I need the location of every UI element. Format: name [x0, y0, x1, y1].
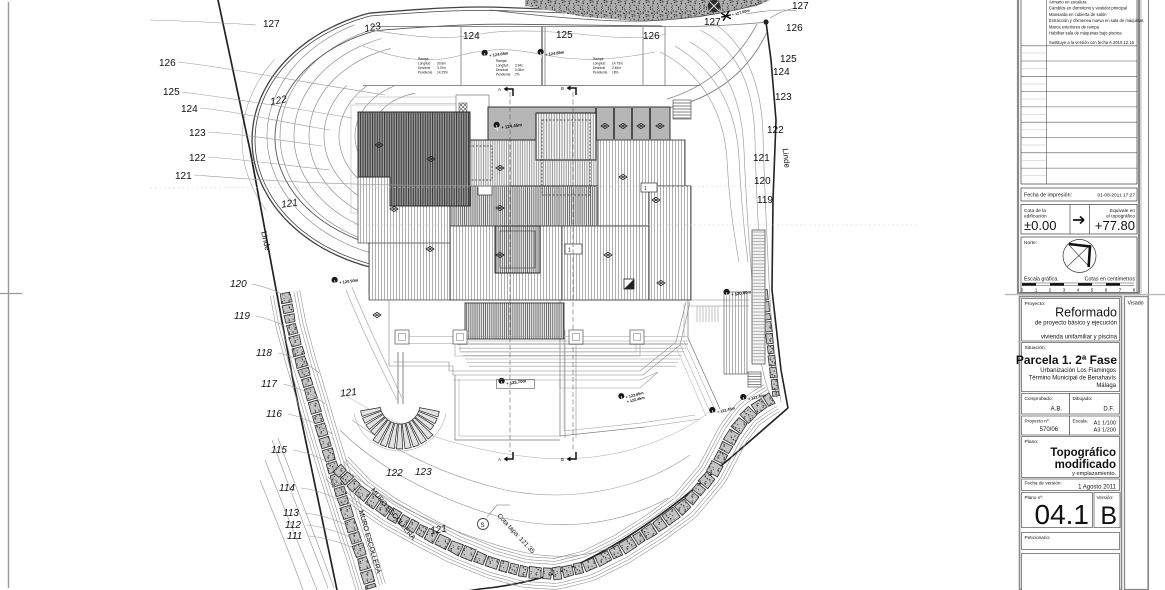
svg-text:Situación:: Situación:: [1025, 345, 1046, 351]
svg-text:±0.00: ±0.00: [1024, 218, 1056, 233]
svg-text:Fecha de impresión:: Fecha de impresión:: [1024, 193, 1072, 199]
svg-text:Cambios en dormitorio y vestid: Cambios en dormitorio y vestidor princip…: [1049, 6, 1127, 11]
svg-text:30.8m: 30.8m: [437, 62, 446, 66]
svg-text:14.75m: 14.75m: [612, 62, 623, 66]
svg-text:2%: 2%: [515, 73, 520, 77]
svg-text:Málaga: Málaga: [1096, 383, 1116, 389]
svg-text:122: 122: [767, 125, 784, 136]
svg-text:121: 121: [281, 198, 299, 211]
svg-text:3: 3: [1063, 288, 1066, 293]
svg-text:B: B: [1100, 502, 1117, 530]
svg-text:127: 127: [792, 1, 809, 12]
svg-text:121: 121: [753, 153, 770, 164]
svg-text:D.F.: D.F.: [1103, 407, 1114, 413]
svg-text:Topográfico: Topográfico: [1050, 447, 1116, 459]
svg-text:Equivale en: Equivale en: [1110, 208, 1135, 214]
svg-text:Marca exteriores de rampa: Marca exteriores de rampa: [1049, 24, 1100, 29]
svg-text:Mansarda en cubierta de salón: Mansarda en cubierta de salón: [1049, 12, 1107, 17]
svg-text:127: 127: [263, 19, 280, 30]
svg-text:Armario en escalera: Armario en escalera: [1049, 0, 1087, 5]
svg-text:Sustituye a la versión con fec: Sustituye a la versión con fecha A.2010.…: [1049, 40, 1135, 45]
svg-text:Desnivel: Desnivel: [418, 66, 431, 70]
svg-text:3.70m: 3.70m: [437, 66, 446, 70]
svg-text:18%: 18%: [612, 71, 619, 75]
svg-text:120: 120: [754, 176, 771, 187]
svg-text:119: 119: [757, 195, 773, 206]
svg-text:Proyecto nº:: Proyecto nº:: [1025, 419, 1050, 424]
svg-text:1 Agosto 2011: 1 Agosto 2011: [1078, 485, 1117, 491]
svg-text:124: 124: [181, 104, 198, 115]
svg-text:A3 1/200: A3 1/200: [1094, 428, 1116, 434]
svg-text:126: 126: [786, 23, 803, 34]
svg-text:8: 8: [1133, 288, 1136, 293]
svg-text:Escala:: Escala:: [1073, 419, 1088, 424]
svg-text:124: 124: [463, 31, 480, 42]
svg-text:122: 122: [386, 468, 403, 479]
svg-text:y emplazamiento.: y emplazamiento.: [1072, 471, 1116, 477]
svg-text:117: 117: [261, 379, 277, 390]
svg-text:A.B.: A.B.: [1051, 407, 1063, 413]
svg-text:Pendiente: Pendiente: [418, 71, 433, 75]
svg-text:Parcela 1. 2ª Fase: Parcela 1. 2ª Fase: [1016, 353, 1118, 367]
svg-text:119: 119: [234, 311, 250, 322]
svg-text:Comprobado:: Comprobado:: [1025, 396, 1053, 401]
svg-text:0.08m: 0.08m: [515, 68, 524, 72]
svg-text:2.46m: 2.46m: [612, 66, 621, 70]
svg-text:14.25%: 14.25%: [437, 71, 448, 75]
svg-text:122: 122: [189, 153, 206, 164]
svg-text:1: 1: [644, 186, 647, 192]
svg-text:Pendiente: Pendiente: [593, 71, 608, 75]
svg-text:124: 124: [773, 67, 790, 78]
svg-text:Cota de la: Cota de la: [1024, 208, 1046, 214]
svg-text:04.1: 04.1: [1035, 499, 1090, 530]
svg-text:116: 116: [266, 409, 282, 420]
svg-text:121: 121: [175, 171, 192, 182]
svg-text:123: 123: [415, 467, 432, 478]
svg-text:126: 126: [159, 58, 176, 69]
svg-text:123: 123: [189, 128, 206, 139]
svg-text:4: 4: [1077, 288, 1080, 293]
svg-text:3.94s: 3.94s: [515, 64, 523, 68]
svg-text:123: 123: [775, 92, 792, 103]
svg-text:120: 120: [230, 279, 247, 290]
svg-text:Plano:: Plano:: [1025, 439, 1039, 445]
svg-text:115: 115: [271, 445, 287, 456]
svg-text:vivienda unifamiliar y piscina: vivienda unifamiliar y piscina: [1041, 335, 1118, 341]
svg-text:+77.80: +77.80: [1095, 218, 1135, 233]
svg-text:Longitud: Longitud: [496, 64, 508, 68]
svg-text:127: 127: [704, 17, 721, 28]
svg-text:125: 125: [163, 87, 180, 98]
svg-text:1: 1: [1035, 288, 1038, 293]
svg-text:111: 111: [287, 531, 302, 542]
svg-text:Longitud: Longitud: [418, 62, 430, 66]
svg-text:121: 121: [340, 387, 358, 400]
svg-text:2: 2: [1049, 288, 1052, 293]
svg-text:Extracción y chimenea nueva en: Extracción y chimenea nueva en sala de m…: [1049, 18, 1144, 23]
svg-text:112: 112: [285, 520, 301, 531]
svg-text:B: B: [561, 457, 564, 462]
svg-text:Rampa:: Rampa:: [593, 57, 604, 61]
svg-text:B: B: [561, 86, 564, 91]
svg-text:A1 1/100: A1 1/100: [1094, 421, 1116, 427]
svg-text:S: S: [481, 523, 485, 529]
svg-text:Dibujado:: Dibujado:: [1073, 396, 1093, 401]
svg-text:118: 118: [256, 348, 272, 359]
svg-text:Longitud: Longitud: [593, 62, 605, 66]
svg-text:modificado: modificado: [1055, 459, 1116, 471]
svg-text:1: 1: [568, 248, 571, 254]
svg-text:Peticionario:: Peticionario:: [1025, 535, 1051, 540]
svg-text:Desnivel: Desnivel: [593, 66, 606, 70]
svg-text:Reformado: Reformado: [1055, 306, 1117, 320]
svg-text:Rampa:: Rampa:: [418, 57, 429, 61]
svg-text:Rampa:: Rampa:: [496, 59, 507, 63]
svg-text:Proyecto:: Proyecto:: [1025, 301, 1046, 307]
svg-text:Término Municipal de Benahavís: Término Municipal de Benahavís: [1029, 376, 1116, 382]
svg-text:Norte:: Norte:: [1024, 240, 1037, 246]
svg-text:Pendiente: Pendiente: [496, 73, 511, 77]
svg-text:A: A: [498, 87, 501, 92]
svg-text:Visado: Visado: [1128, 301, 1144, 307]
svg-text:A: A: [498, 457, 501, 462]
svg-text:570/06: 570/06: [1040, 427, 1059, 433]
svg-text:Habilitar sala de máquinas baj: Habilitar sala de máquinas bajo piscina: [1049, 31, 1122, 36]
svg-text:126: 126: [643, 31, 660, 42]
svg-text:114: 114: [279, 483, 295, 494]
svg-text:113: 113: [283, 508, 299, 519]
svg-text:125: 125: [780, 54, 797, 65]
svg-text:Desnivel: Desnivel: [496, 68, 509, 72]
svg-text:Urbanización Los Flamingos: Urbanización Los Flamingos: [1040, 368, 1116, 374]
svg-text:Escala gráfica.: Escala gráfica.: [1024, 277, 1059, 283]
svg-text:5: 5: [1091, 288, 1094, 293]
svg-text:Fecha de versión:: Fecha de versión:: [1025, 481, 1062, 486]
svg-text:Cotas en centímetros: Cotas en centímetros: [1085, 277, 1136, 283]
svg-text:de proyecto básico y ejecución: de proyecto básico y ejecución: [1035, 321, 1117, 327]
svg-text:125: 125: [556, 30, 573, 41]
svg-text:01-08-2011 17:27: 01-08-2011 17:27: [1097, 193, 1135, 199]
svg-text:0: 0: [1021, 288, 1024, 293]
svg-text:7: 7: [1119, 288, 1122, 293]
svg-text:6: 6: [1105, 288, 1108, 293]
svg-text:Versión:: Versión:: [1097, 495, 1114, 500]
